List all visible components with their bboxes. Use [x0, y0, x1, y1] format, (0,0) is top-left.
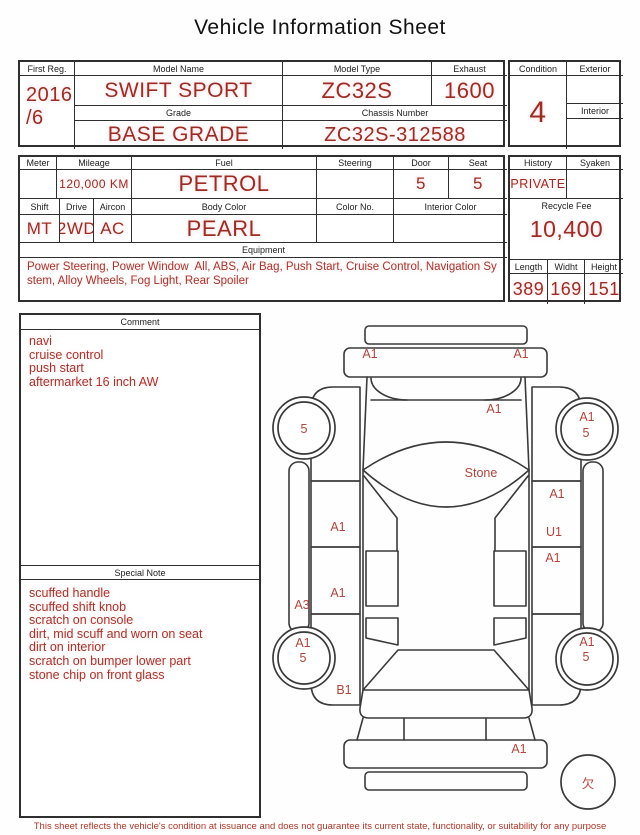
- comment-header: Comment: [21, 315, 259, 330]
- diagram-label-left-front-door: A1: [330, 520, 345, 534]
- diagram-label-front-bumper-right: A1: [513, 347, 528, 361]
- aircon-value: AC: [94, 215, 132, 243]
- comment-panel: Comment navicruise controlpush startafte…: [19, 313, 261, 818]
- right-sill: [583, 462, 603, 632]
- diagram-label-hood: A1: [486, 402, 501, 416]
- rear-window: [363, 650, 529, 690]
- model-type-value: ZC32S: [283, 76, 432, 106]
- color-no-value: [317, 215, 394, 243]
- model-name-value: SWIFT SPORT: [75, 76, 283, 106]
- special-note-line: stone chip on front glass: [29, 669, 255, 683]
- meter-value: [20, 170, 57, 199]
- condition-value: 4: [510, 76, 567, 149]
- wheels: [273, 397, 618, 809]
- fuel-value: PETROL: [132, 170, 317, 199]
- special-note-line: scratch on bumper lower part: [29, 655, 255, 669]
- diagram-label-rear-left-wheel: 5: [300, 651, 307, 665]
- headlight-arcs: [371, 378, 521, 400]
- recycle-fee-value: 10,400: [530, 216, 603, 243]
- first-reg-value: 2016 /6: [20, 76, 75, 149]
- shift-header: Shift: [20, 199, 60, 215]
- recycle-fee-header: Recycle Fee: [541, 201, 591, 211]
- interior-value: [567, 119, 623, 149]
- length-header: Length: [510, 260, 548, 274]
- comment-lines: navicruise controlpush startaftermarket …: [29, 335, 255, 389]
- diagram-label-rear-left-wheel: A1: [295, 636, 310, 650]
- interior-color-header: Interior Color: [394, 199, 507, 215]
- exhaust-header: Exhaust: [432, 62, 507, 76]
- width-header: Widht: [548, 260, 585, 274]
- grade-header: Grade: [75, 106, 283, 121]
- diagram-label-front-left-wheel: 5: [301, 422, 308, 436]
- first-reg-month: /6: [26, 107, 44, 130]
- disclaimer: This sheet reflects the vehicle's condit…: [0, 821, 640, 832]
- first-reg-header: First Reg.: [20, 62, 75, 76]
- diagram-label-right-front-door: U1: [546, 525, 562, 539]
- seat-header: Seat: [449, 157, 507, 170]
- diagram-label-spare-tire: 欠: [582, 776, 595, 791]
- syaken-value: [567, 170, 623, 199]
- length-value: 389: [510, 274, 548, 304]
- comment-line: aftermarket 16 inch AW: [29, 376, 255, 390]
- condition-header: Condition: [510, 62, 567, 76]
- diagram-label-windshield: Stone: [465, 466, 498, 480]
- quarter-windows: [366, 618, 526, 645]
- body-color-header: Body Color: [132, 199, 317, 215]
- diagram-label-right-front-fender: A1: [549, 487, 564, 501]
- condition-table: Condition Exterior 4 Interior: [508, 60, 621, 147]
- seat-value: 5: [449, 170, 507, 199]
- special-note-lines: scuffed handlescuffed shift knobscratch …: [29, 587, 255, 682]
- grade-value: BASE GRADE: [75, 121, 283, 149]
- history-table: History Syaken PRIVATE Recycle Fee 10,40…: [508, 155, 621, 302]
- rear-strip: [365, 772, 527, 790]
- vehicle-information-sheet: Vehicle Information Sheet First Reg. Mod…: [0, 0, 640, 835]
- drive-value: 2WD: [60, 215, 94, 243]
- fuel-header: Fuel: [132, 157, 317, 170]
- comment-line: navi: [29, 335, 255, 349]
- height-header: Height: [585, 260, 623, 274]
- front-strip: [365, 326, 527, 344]
- exterior-header: Exterior: [567, 62, 623, 76]
- mileage-header: Mileage: [57, 157, 132, 170]
- left-door-window: [366, 551, 398, 606]
- diagram-label-front-right-wheel: A1: [579, 410, 594, 424]
- diagram-label-left-sill: A3: [294, 598, 309, 612]
- car-damage-diagram: A1A1A15A15StoneA1A1U1A1A1A3A15A15B1A1欠: [262, 315, 640, 820]
- model-name-header: Model Name: [75, 62, 283, 76]
- diagram-label-left-rear-door: A1: [330, 586, 345, 600]
- history-header: History: [510, 157, 567, 170]
- door-header: Door: [394, 157, 449, 170]
- interior-header: Interior: [567, 104, 623, 119]
- windshield: [363, 442, 529, 507]
- diagram-label-rear-bumper-right: A1: [511, 742, 526, 756]
- body-color-value: PEARL: [132, 215, 317, 243]
- model-type-header: Model Type: [283, 62, 432, 76]
- height-value: 151: [585, 274, 623, 304]
- door-value: 5: [394, 170, 449, 199]
- special-note-line: scuffed handle: [29, 587, 255, 601]
- trunk: [360, 690, 532, 718]
- first-reg-year: 2016: [26, 84, 73, 107]
- exterior-value: [567, 76, 623, 104]
- equipment-value: Power Steering, Power Window All, ABS, A…: [20, 258, 507, 304]
- diagram-label-front-right-wheel: 5: [583, 426, 590, 440]
- special-note-line: scratch on console: [29, 614, 255, 628]
- shift-value: MT: [20, 215, 60, 243]
- a-pillars: [364, 476, 528, 551]
- special-note-header: Special Note: [21, 565, 259, 580]
- diagram-label-rear-right-wheel: 5: [583, 650, 590, 664]
- diagram-label-right-rear-door: A1: [545, 551, 560, 565]
- width-value: 169: [548, 274, 585, 304]
- diagram-label-front-bumper-left: A1: [362, 347, 377, 361]
- recycle-fee-cell: Recycle Fee 10,400: [510, 199, 623, 260]
- aircon-header: Aircon: [94, 199, 132, 215]
- chassis-number-value: ZC32S-312588: [283, 121, 507, 149]
- color-no-header: Color No.: [317, 199, 394, 215]
- top-table: First Reg. Model Name Model Type Exhaust…: [18, 60, 505, 147]
- interior-color-value: [394, 215, 507, 243]
- rear-panel-lines: [357, 718, 535, 740]
- steering-value: [317, 170, 394, 199]
- page-title: Vehicle Information Sheet: [0, 16, 640, 40]
- mileage-value: 120,000 KM: [57, 170, 132, 199]
- steering-header: Steering: [317, 157, 394, 170]
- equipment-header: Equipment: [20, 243, 507, 258]
- special-note-line: dirt on interior: [29, 641, 255, 655]
- exhaust-value: 1600: [432, 76, 507, 106]
- meter-header: Meter: [20, 157, 57, 170]
- drive-header: Drive: [60, 199, 94, 215]
- comment-line: push start: [29, 362, 255, 376]
- right-door-window: [494, 551, 526, 606]
- left-front-door: [311, 481, 360, 547]
- diagram-label-left-quarter: B1: [336, 683, 351, 697]
- left-rear-door: [311, 547, 360, 614]
- diagram-label-rear-right-wheel: A1: [579, 635, 594, 649]
- roof-sides: [363, 470, 529, 690]
- spec-table: Meter Mileage Fuel Steering Door Seat 12…: [18, 155, 505, 302]
- history-value: PRIVATE: [510, 170, 567, 199]
- chassis-number-header: Chassis Number: [283, 106, 507, 121]
- syaken-header: Syaken: [567, 157, 623, 170]
